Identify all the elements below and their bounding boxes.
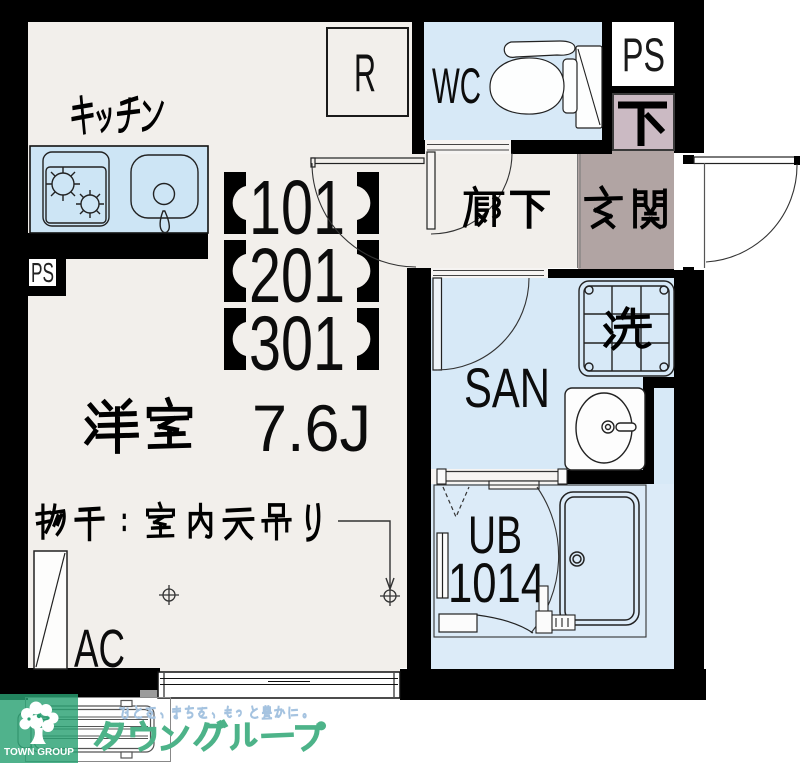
svg-text:AC: AC xyxy=(74,619,125,679)
svg-text:PS: PS xyxy=(622,28,665,81)
svg-text:R: R xyxy=(354,44,376,103)
svg-text:301: 301 xyxy=(249,301,345,387)
svg-text:SAN: SAN xyxy=(464,356,550,419)
svg-text:1014: 1014 xyxy=(448,551,545,614)
svg-text:7.6J: 7.6J xyxy=(252,391,371,465)
svg-text:PS: PS xyxy=(31,257,54,288)
svg-text:WC: WC xyxy=(432,58,481,114)
svg-text:TOWN GROUP: TOWN GROUP xyxy=(4,747,74,758)
